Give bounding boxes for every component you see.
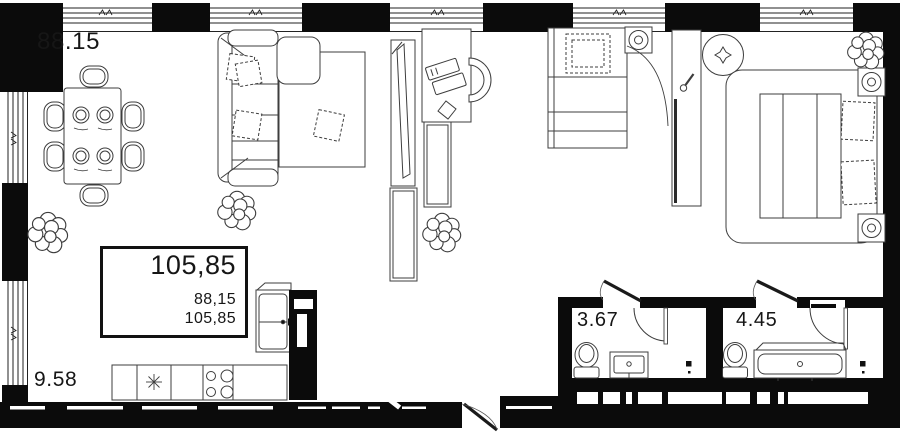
living-total-value: 88,15 xyxy=(103,290,236,310)
toilet xyxy=(723,343,748,379)
floor-plan-drawing xyxy=(0,0,900,433)
nightstand xyxy=(625,27,652,53)
fridge xyxy=(256,283,292,352)
summary-spacer xyxy=(103,281,236,290)
bathroom2-door-threshold xyxy=(811,304,836,308)
area-summary-box: 105,85 88,15 105,85 xyxy=(100,246,248,338)
bathtub xyxy=(754,343,846,381)
sofa xyxy=(218,30,365,186)
sofa-chaise xyxy=(277,37,320,84)
total-area-value: 105,85 xyxy=(103,251,236,281)
tv-panel xyxy=(391,40,415,186)
nightstand xyxy=(858,214,885,242)
vent-shaft xyxy=(289,290,317,400)
vanity-sink xyxy=(610,352,648,378)
overall-total-value: 105,85 xyxy=(103,309,236,329)
dining-table xyxy=(64,88,121,184)
kitchen-counter xyxy=(112,365,287,400)
living-room-area-label: 88.15 xyxy=(37,28,100,56)
bathroom-small-area-label: 3.67 xyxy=(577,309,618,332)
plant-icon xyxy=(848,32,884,69)
ceiling-fan-icon xyxy=(703,35,744,76)
entry-door xyxy=(462,404,497,430)
floor-drain-icon xyxy=(686,361,692,374)
floor-drain-icon xyxy=(860,361,866,374)
wardrobe xyxy=(390,188,417,281)
kitchen-area-label: 9.58 xyxy=(34,368,77,392)
mirror-partition xyxy=(672,30,701,206)
toilet xyxy=(574,343,599,379)
nightstand xyxy=(858,68,885,96)
desk xyxy=(422,29,471,207)
plant-icon xyxy=(423,213,461,252)
floor-plan: 88.15 9.58 3.67 4.45 105,85 88,15 105,85 xyxy=(0,0,900,433)
door-swing-arc xyxy=(627,46,668,126)
plant-icon xyxy=(218,191,256,230)
bathroom-large-area-label: 4.45 xyxy=(736,309,777,332)
plant-icon xyxy=(28,212,68,252)
single-bed xyxy=(548,28,627,148)
double-bed xyxy=(726,70,877,243)
desk-chair xyxy=(469,58,491,102)
